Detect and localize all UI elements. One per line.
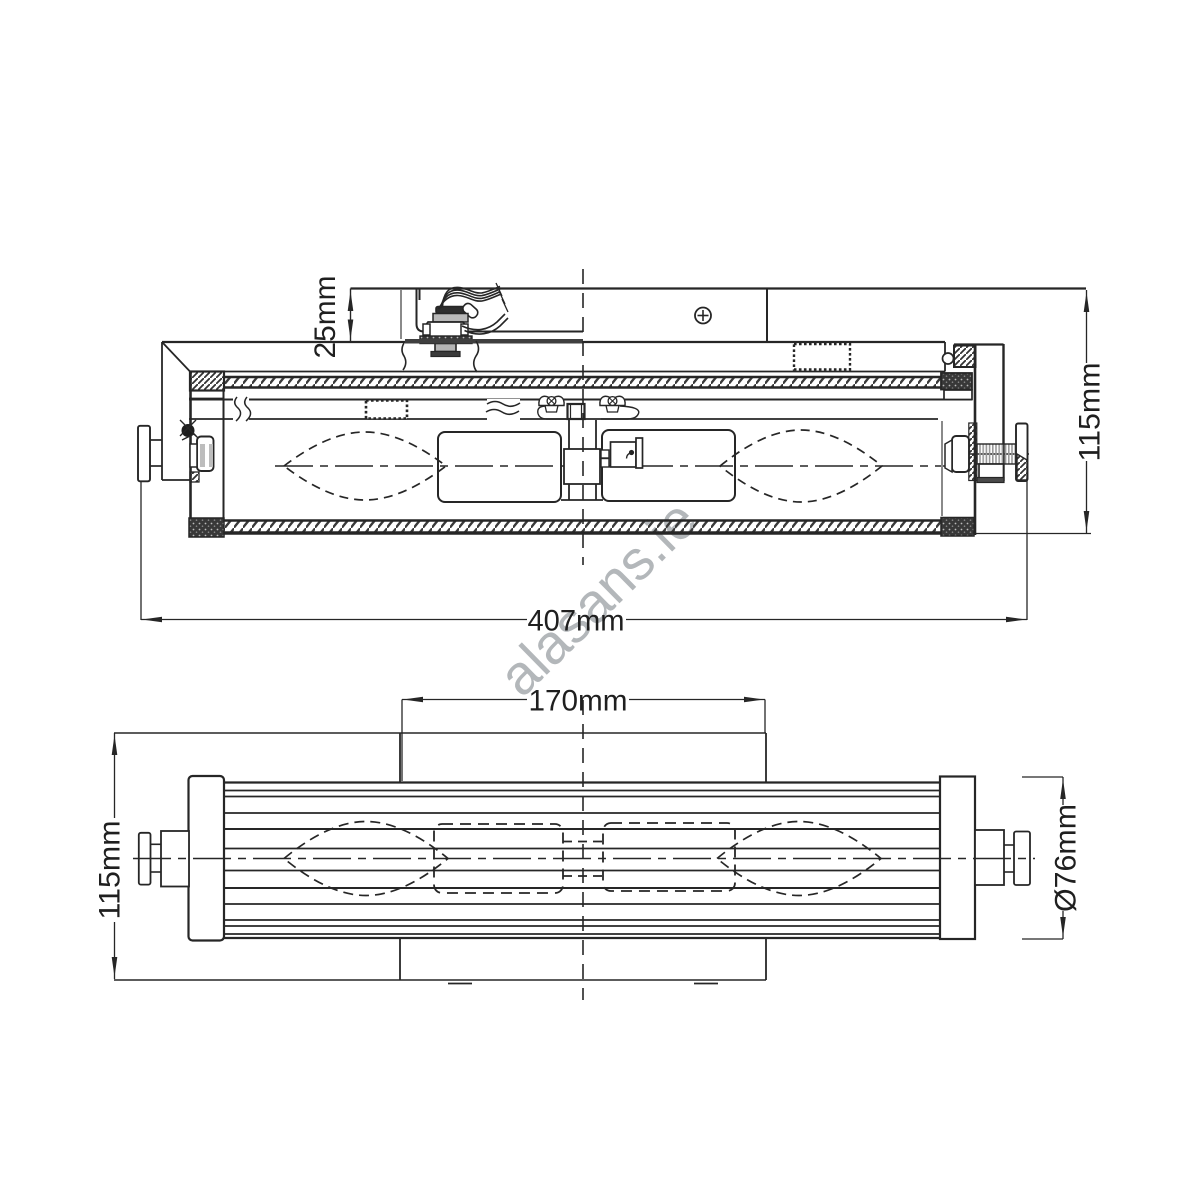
svg-text:Ø76mm: Ø76mm <box>1050 804 1083 912</box>
svg-text:407mm: 407mm <box>528 605 625 638</box>
svg-text:115mm: 115mm <box>1074 363 1107 462</box>
svg-text:170mm: 170mm <box>529 685 628 718</box>
svg-text:115mm: 115mm <box>94 821 127 920</box>
svg-text:25mm: 25mm <box>309 276 342 359</box>
